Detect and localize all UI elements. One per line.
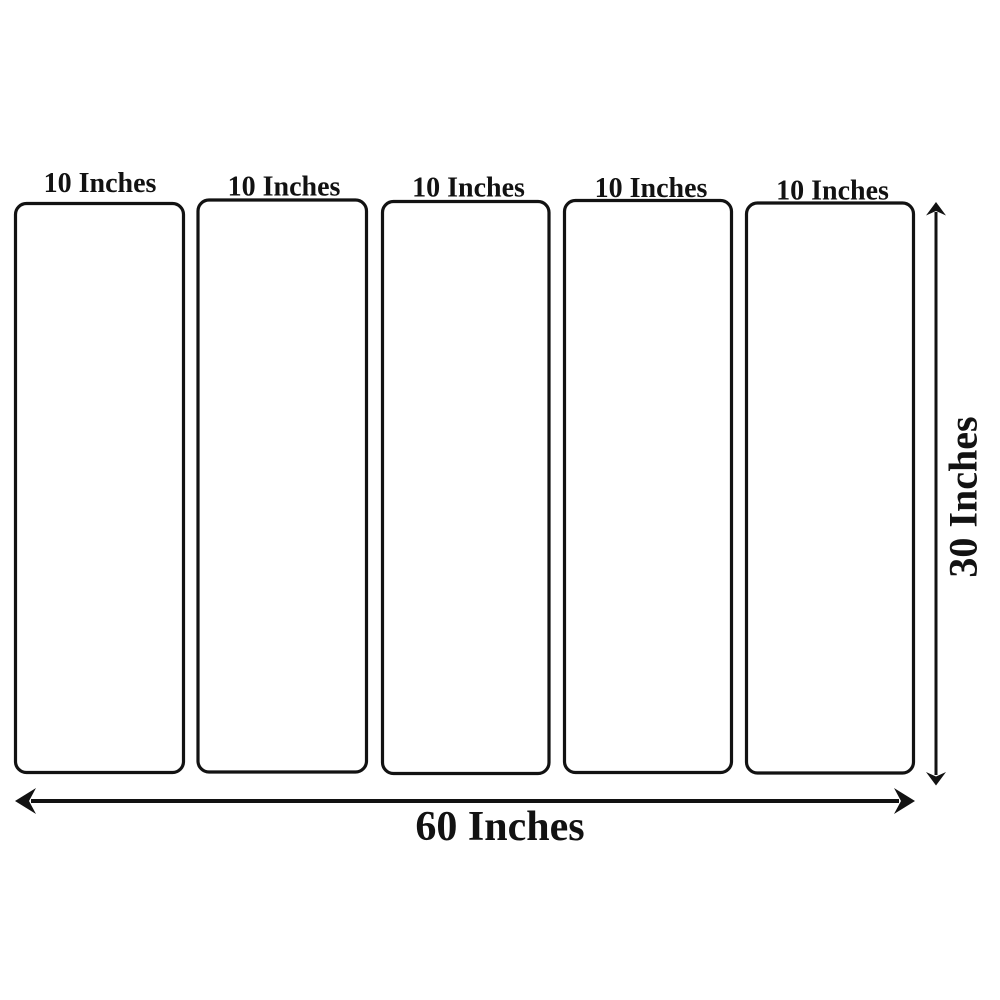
svg-text:60 Inches: 60 Inches [415, 804, 584, 850]
svg-text:30 Inches: 30 Inches [941, 416, 986, 577]
svg-text:10 Inches: 10 Inches [412, 173, 525, 204]
svg-text:10 Inches: 10 Inches [228, 172, 341, 203]
svg-text:10 Inches: 10 Inches [44, 168, 157, 199]
